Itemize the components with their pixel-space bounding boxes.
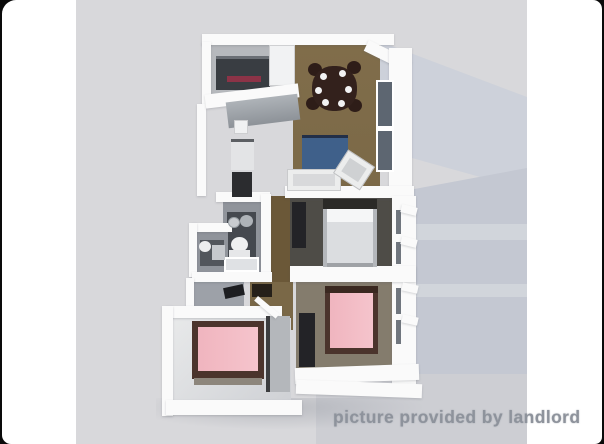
plate <box>315 87 322 94</box>
bathtub <box>224 257 259 272</box>
plate <box>320 73 327 80</box>
window-sill <box>378 126 392 131</box>
bedroom2-bed <box>325 286 378 354</box>
toilet-tank <box>229 250 250 257</box>
coffee-table-top <box>293 174 335 186</box>
bedroom2-window-inset <box>396 320 401 344</box>
kitchen-counter <box>216 56 270 90</box>
fridge <box>269 45 295 86</box>
dining-set <box>305 59 365 117</box>
wall-shelf <box>234 120 248 134</box>
wall-bottom-right <box>296 380 422 398</box>
bedroom1-window-inset <box>396 210 401 234</box>
bedroom2-closet <box>299 313 315 367</box>
bed-foot <box>327 263 373 267</box>
screenshot-stage: picture provided by landlord <box>0 0 604 444</box>
bed-pillow <box>327 209 373 222</box>
bed-rail <box>373 209 377 267</box>
wall-left-mid <box>197 104 206 196</box>
stove <box>227 76 261 82</box>
bathroom2-fixture <box>199 241 211 252</box>
bathroom-sink <box>228 217 240 228</box>
bed-mattress-pink <box>330 293 373 348</box>
living-window-glass <box>376 80 394 172</box>
wall-below-baths <box>192 272 272 282</box>
bedroom3-closet-band <box>266 316 290 392</box>
doormat <box>252 284 272 297</box>
bathroom2-fixture <box>212 245 225 260</box>
bathroom-sink <box>240 215 253 227</box>
bed-headboard <box>323 199 377 209</box>
wall-bedroom3-bottom <box>166 400 302 415</box>
wall-bath-right <box>261 194 271 276</box>
bed-blanket <box>327 222 373 263</box>
floorplan-photo <box>76 0 527 444</box>
watermark-text: picture provided by landlord <box>333 407 580 428</box>
plate <box>339 70 346 77</box>
bedroom1-bed <box>323 199 377 267</box>
bedroom1-closet <box>292 202 306 248</box>
listing-photo-card: picture provided by landlord <box>2 0 602 444</box>
wall-bath2-top <box>192 223 232 232</box>
bedroom3-bed <box>192 321 264 379</box>
wall-bath2-left <box>189 223 197 277</box>
bedroom3-bench <box>194 378 262 385</box>
plate <box>322 99 329 106</box>
wall-top <box>202 34 394 45</box>
armchair-seat <box>341 158 366 182</box>
plate <box>338 100 345 107</box>
bed-headboard <box>325 286 378 293</box>
bedroom1-window-inset <box>396 242 401 264</box>
bed-mattress-pink <box>198 327 258 371</box>
wall-bedroom1-bedroom2 <box>290 266 416 282</box>
background-streak <box>401 284 527 297</box>
media-dresser <box>231 139 254 170</box>
dark-cabinet <box>232 172 252 197</box>
bedroom2-window-inset <box>396 288 401 314</box>
plate <box>345 86 352 93</box>
